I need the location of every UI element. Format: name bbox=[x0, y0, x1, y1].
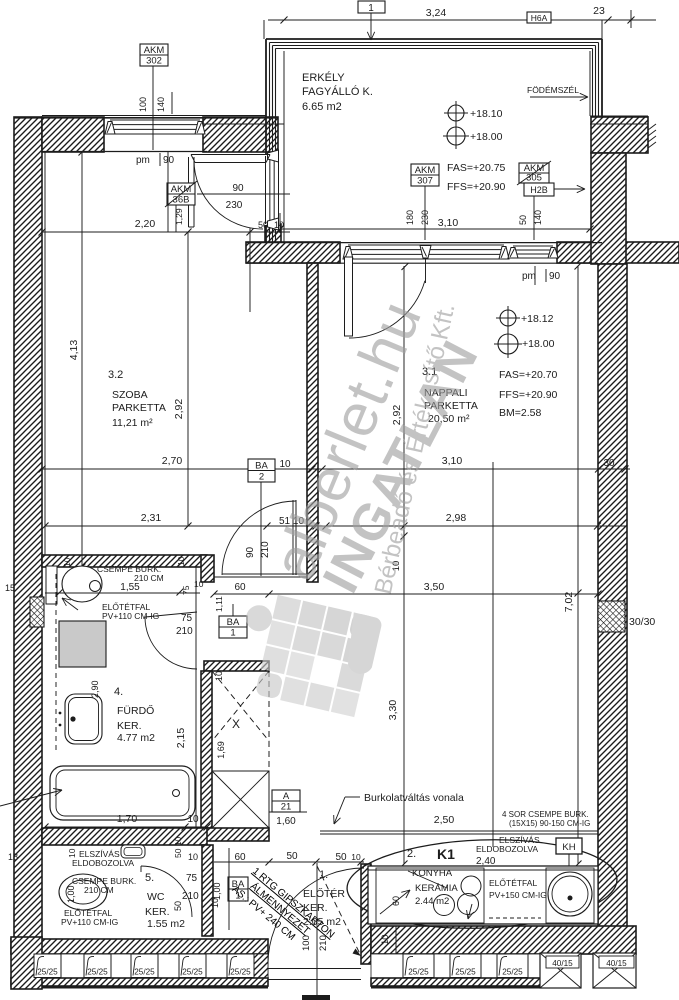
svg-text:+18.12: +18.12 bbox=[521, 313, 554, 325]
svg-text:3,50: 3,50 bbox=[424, 581, 445, 593]
svg-text:5.: 5. bbox=[145, 872, 154, 884]
svg-text:10: 10 bbox=[176, 556, 186, 566]
svg-text:90: 90 bbox=[232, 183, 244, 194]
svg-text:60: 60 bbox=[391, 896, 401, 906]
svg-text:30/30: 30/30 bbox=[629, 616, 655, 628]
svg-text:BM=2.58: BM=2.58 bbox=[499, 407, 541, 419]
svg-text:+18.00: +18.00 bbox=[470, 131, 503, 143]
svg-text:18: 18 bbox=[8, 852, 18, 862]
svg-text:2,40: 2,40 bbox=[476, 856, 496, 867]
svg-text:FFS=+20.90: FFS=+20.90 bbox=[499, 389, 558, 401]
svg-text:75: 75 bbox=[186, 873, 198, 884]
svg-text:pm: pm bbox=[136, 155, 150, 166]
svg-text:10: 10 bbox=[279, 459, 291, 470]
svg-text:302: 302 bbox=[146, 56, 162, 67]
svg-text:3,10: 3,10 bbox=[442, 455, 463, 467]
svg-text:PARKETTA: PARKETTA bbox=[112, 402, 166, 414]
svg-text:30: 30 bbox=[603, 458, 615, 469]
svg-text:1: 1 bbox=[230, 628, 235, 639]
svg-text:210: 210 bbox=[318, 935, 329, 951]
svg-text:ELŐTÉTFAL: ELŐTÉTFAL bbox=[489, 878, 537, 888]
svg-text:2,98: 2,98 bbox=[446, 512, 467, 524]
svg-text:3,24: 3,24 bbox=[426, 7, 447, 19]
svg-text:1,70: 1,70 bbox=[117, 813, 138, 825]
svg-text:10: 10 bbox=[62, 557, 72, 567]
svg-text:2.: 2. bbox=[407, 848, 416, 860]
svg-text:KER.: KER. bbox=[303, 902, 328, 914]
svg-text:10: 10 bbox=[380, 934, 391, 945]
svg-text:+18.00: +18.00 bbox=[522, 338, 555, 350]
svg-text:AKM: AKM bbox=[144, 45, 165, 56]
svg-text:2,15: 2,15 bbox=[175, 728, 187, 749]
svg-text:230: 230 bbox=[226, 200, 243, 211]
svg-text:A: A bbox=[283, 791, 290, 802]
svg-text:Burkolatváltás vonala: Burkolatváltás vonala bbox=[364, 792, 464, 804]
svg-text:180: 180 bbox=[405, 210, 415, 225]
svg-text:10: 10 bbox=[188, 852, 198, 862]
svg-text:2,31: 2,31 bbox=[141, 512, 162, 524]
svg-text:KER.: KER. bbox=[117, 720, 142, 732]
svg-text:2,90: 2,90 bbox=[90, 680, 100, 698]
svg-text:2,50: 2,50 bbox=[434, 814, 455, 826]
svg-text:2.05 m2: 2.05 m2 bbox=[303, 916, 341, 928]
svg-text:1,55: 1,55 bbox=[120, 582, 140, 593]
svg-text:23: 23 bbox=[593, 5, 605, 17]
svg-text:50: 50 bbox=[258, 220, 268, 230]
svg-text:210: 210 bbox=[182, 891, 199, 902]
svg-text:2: 2 bbox=[259, 472, 264, 483]
svg-text:ELŐTÉR: ELŐTÉR bbox=[303, 886, 345, 900]
svg-text:50: 50 bbox=[335, 852, 347, 863]
svg-text:4 SOR CSEMPE BURK.: 4 SOR CSEMPE BURK. bbox=[502, 810, 589, 819]
svg-text:2.44 m2: 2.44 m2 bbox=[415, 896, 449, 907]
svg-text:25/25: 25/25 bbox=[182, 968, 203, 977]
svg-text:40/15: 40/15 bbox=[552, 959, 573, 968]
svg-text:140: 140 bbox=[533, 210, 543, 225]
svg-text:100: 100 bbox=[301, 935, 312, 951]
svg-text:10: 10 bbox=[67, 848, 77, 858]
svg-text:140: 140 bbox=[156, 97, 166, 112]
svg-text:10: 10 bbox=[274, 220, 284, 230]
svg-text:1,00: 1,00 bbox=[66, 885, 76, 903]
svg-text:ELDOBOZOLVA: ELDOBOZOLVA bbox=[476, 844, 538, 854]
svg-text:36B: 36B bbox=[173, 195, 190, 206]
svg-text:50: 50 bbox=[518, 215, 528, 225]
svg-text:PV+150 CM-IG: PV+150 CM-IG bbox=[489, 890, 547, 900]
svg-text:SZOBA: SZOBA bbox=[112, 389, 148, 401]
svg-text:H6A: H6A bbox=[531, 13, 548, 23]
svg-text:FÖDÉMSZÉL: FÖDÉMSZÉL bbox=[527, 85, 579, 95]
svg-text:7,02: 7,02 bbox=[563, 592, 575, 613]
svg-text:WC: WC bbox=[147, 891, 165, 903]
svg-text:1,69: 1,69 bbox=[216, 741, 226, 759]
svg-text:+18.10: +18.10 bbox=[470, 108, 503, 120]
svg-text:3,30: 3,30 bbox=[387, 700, 399, 721]
svg-text:KH: KH bbox=[562, 842, 575, 853]
svg-text:3.2: 3.2 bbox=[108, 369, 123, 381]
svg-text:10: 10 bbox=[194, 579, 204, 589]
svg-text:KONYHA: KONYHA bbox=[412, 868, 453, 879]
svg-text:10: 10 bbox=[214, 671, 224, 681]
svg-text:ERKÉLY: ERKÉLY bbox=[302, 71, 345, 84]
svg-text:ELDOBOZOLVA: ELDOBOZOLVA bbox=[72, 858, 134, 868]
svg-text:2,70: 2,70 bbox=[162, 455, 183, 467]
svg-text:230: 230 bbox=[420, 210, 430, 225]
svg-text:K1: K1 bbox=[437, 846, 455, 862]
svg-text:10: 10 bbox=[187, 814, 199, 825]
svg-text:210: 210 bbox=[176, 626, 193, 637]
svg-text:3,10: 3,10 bbox=[438, 217, 459, 229]
svg-text:50 10: 50 10 bbox=[173, 836, 183, 858]
svg-text:X: X bbox=[232, 717, 240, 731]
svg-text:25/25: 25/25 bbox=[37, 968, 58, 977]
svg-text:H2B: H2B bbox=[530, 185, 548, 195]
svg-text:2,20: 2,20 bbox=[135, 218, 156, 230]
svg-text:1,60: 1,60 bbox=[276, 816, 296, 827]
svg-text:KERÁMIA: KERÁMIA bbox=[415, 883, 458, 894]
svg-text:1,00: 1,00 bbox=[212, 882, 222, 900]
svg-text:FAS=+20.70: FAS=+20.70 bbox=[499, 369, 558, 381]
svg-text:BA: BA bbox=[227, 617, 240, 628]
svg-text:1.55 m2: 1.55 m2 bbox=[147, 918, 185, 930]
svg-text:60: 60 bbox=[234, 852, 246, 863]
svg-text:4,13: 4,13 bbox=[68, 340, 80, 361]
svg-text:90: 90 bbox=[549, 271, 561, 282]
svg-text:2,92: 2,92 bbox=[173, 399, 185, 420]
svg-text:50: 50 bbox=[173, 901, 183, 911]
svg-text:50: 50 bbox=[286, 851, 298, 862]
svg-text:25/25: 25/25 bbox=[408, 968, 429, 977]
svg-text:10: 10 bbox=[351, 852, 361, 862]
svg-text:15: 15 bbox=[5, 583, 15, 593]
svg-text:25/25: 25/25 bbox=[230, 968, 251, 977]
svg-text:KER.: KER. bbox=[145, 906, 170, 918]
svg-text:25/25: 25/25 bbox=[134, 968, 155, 977]
svg-text:21: 21 bbox=[281, 802, 292, 813]
svg-text:75: 75 bbox=[181, 613, 193, 624]
svg-text:307: 307 bbox=[417, 176, 433, 187]
svg-text:AKM: AKM bbox=[415, 165, 436, 176]
svg-text:(15X15) 90-150 CM-IG: (15X15) 90-150 CM-IG bbox=[509, 819, 590, 828]
svg-text:90: 90 bbox=[245, 546, 256, 558]
svg-text:100: 100 bbox=[138, 97, 148, 112]
svg-text:11,21 m²: 11,21 m² bbox=[112, 417, 153, 429]
svg-text:1: 1 bbox=[368, 3, 374, 14]
svg-text:90: 90 bbox=[163, 155, 175, 166]
svg-text:25/25: 25/25 bbox=[502, 968, 523, 977]
svg-text:305: 305 bbox=[526, 173, 542, 184]
svg-text:BA: BA bbox=[255, 461, 268, 472]
svg-text:6.65 m2: 6.65 m2 bbox=[302, 101, 342, 113]
svg-text:4.: 4. bbox=[114, 686, 123, 698]
svg-text:FÜRDŐ: FÜRDŐ bbox=[117, 703, 154, 717]
svg-text:FAGYÁLLÓ K.: FAGYÁLLÓ K. bbox=[302, 85, 373, 98]
svg-text:FFS=+20.90: FFS=+20.90 bbox=[447, 181, 506, 193]
svg-text:PV+110 CM-IG: PV+110 CM-IG bbox=[61, 917, 118, 927]
svg-text:25/25: 25/25 bbox=[87, 968, 108, 977]
svg-text:FAS=+20.75: FAS=+20.75 bbox=[447, 162, 506, 174]
svg-text:25/25: 25/25 bbox=[455, 968, 476, 977]
svg-text:40/15: 40/15 bbox=[606, 959, 627, 968]
svg-text:1,11: 1,11 bbox=[214, 596, 224, 612]
svg-text:60: 60 bbox=[234, 582, 246, 593]
svg-text:4.77 m2: 4.77 m2 bbox=[117, 732, 155, 744]
svg-text:pm: pm bbox=[522, 271, 536, 282]
svg-text:1,29: 1,29 bbox=[174, 208, 184, 225]
svg-text:210 CM: 210 CM bbox=[84, 885, 114, 895]
